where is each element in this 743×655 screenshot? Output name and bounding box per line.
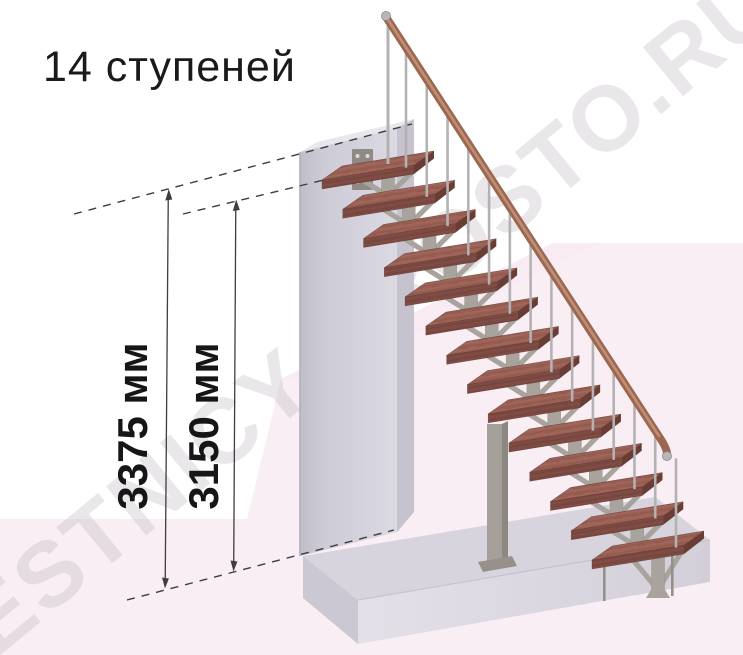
rail-top-cap [381,11,390,20]
baluster [488,173,491,284]
baluster [612,365,615,460]
baluster [633,397,636,490]
baluster [654,428,657,518]
stair-diagram: LESTNICY-PROSTO.RU [0,0,743,655]
baluster [446,109,449,226]
dimension-label-total-height: 3375 мм [109,342,156,509]
baluster [550,269,553,372]
rail-bottom-cap [662,451,671,460]
diagram-canvas: LESTNICY-PROSTO.RU [0,0,743,655]
baluster [592,333,595,431]
baluster [467,141,470,255]
dimension-label-top-step-height: 3150 мм [180,342,227,509]
baluster [405,46,408,168]
baluster [509,205,512,314]
baluster [529,237,532,343]
baluster [425,78,428,197]
page-title: 14 ступеней [43,43,296,91]
rail-start-post [387,20,390,164]
baluster [571,301,574,402]
baluster [675,458,678,547]
